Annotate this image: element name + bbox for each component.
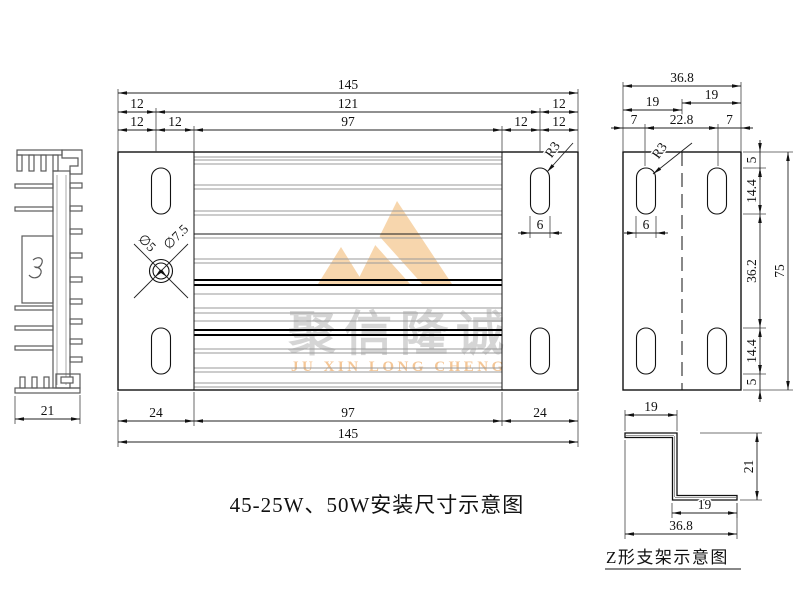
arrowhead (502, 419, 511, 423)
arrowhead (625, 532, 634, 536)
dim-h-12: 12 (502, 114, 540, 132)
side-slot-top-right (708, 168, 727, 214)
dimension-label: 12 (552, 114, 566, 129)
arrowhead (755, 433, 759, 442)
dimension-label: 21 (41, 403, 55, 418)
dim-h-6: 6 (624, 217, 668, 235)
dim-h-145: 145 (118, 426, 578, 444)
arrowhead (185, 419, 194, 423)
z-bracket-view (625, 433, 737, 500)
arrowhead (732, 101, 741, 105)
arrowhead (758, 205, 762, 214)
hole-outer-dia-label: ∅7.5 (160, 221, 191, 252)
arrowhead (623, 84, 632, 88)
hole-inner-dia-label: ∅5 (135, 231, 159, 255)
main-caption: 45-25W、50W安装尺寸示意图 (230, 493, 525, 517)
dimension-label: 21 (741, 460, 756, 474)
technical-drawing: 聚信隆诚 JU XIN LONG CHENG (0, 0, 800, 600)
channel-box (22, 236, 53, 303)
dim-h-24: 24 (502, 405, 578, 423)
dim-h-12: 12 (156, 114, 194, 132)
slot-top-right (531, 168, 550, 214)
arrowhead (682, 101, 691, 105)
arrowhead (194, 419, 203, 423)
dimension-label: 14.4 (744, 179, 759, 203)
dimension-label: 12 (552, 96, 566, 111)
arrowhead (118, 419, 127, 423)
arrowhead (758, 365, 762, 374)
dimension-label: 36.2 (744, 259, 759, 283)
dim-h-145: 145 (118, 77, 578, 95)
arrowhead (502, 128, 511, 132)
arrowhead (656, 231, 665, 235)
dim-h-21: 21 (15, 403, 80, 421)
arrowhead (627, 231, 636, 235)
arrowhead (71, 417, 80, 421)
arrowhead (758, 168, 762, 177)
dim-h-36.8: 36.8 (625, 518, 737, 536)
dim-h-22.8: 22.8 (645, 112, 718, 130)
arrowhead (758, 319, 762, 328)
arrowhead (569, 440, 578, 444)
arrowhead (758, 390, 762, 399)
arrowhead (569, 419, 578, 423)
leader-label: R3 (542, 138, 563, 160)
dimension-label: 36.8 (669, 518, 693, 533)
dimension-label: 145 (338, 426, 359, 441)
dim-h-12: 12 (118, 96, 156, 114)
leader-R3: R3 (542, 138, 573, 173)
dim-v-36.2: 36.2 (744, 214, 762, 328)
dim-h-19: 19 (625, 399, 677, 417)
dim-h-97: 97 (194, 405, 502, 423)
z-caption-text: Z形支架示意图 (606, 548, 729, 567)
arrowhead (156, 110, 165, 114)
arrowhead (118, 110, 127, 114)
arrowhead (755, 491, 759, 500)
arrowhead (540, 128, 549, 132)
arrowhead (550, 231, 559, 235)
dimension-label: 12 (130, 96, 144, 111)
dim-h-36.8: 36.8 (623, 70, 741, 88)
dim-h-12: 12 (540, 114, 578, 132)
dimension-label: 5 (744, 378, 759, 385)
dimension-label: 36.8 (670, 70, 694, 85)
dim-h-6: 6 (518, 217, 562, 235)
dimension-label: 24 (149, 405, 163, 420)
dim-h-97: 97 (194, 114, 502, 132)
arrowhead (786, 381, 790, 390)
dimension-label: 19 (698, 497, 712, 512)
dimension-label: 7 (631, 112, 638, 127)
dimension-label: 5 (744, 156, 759, 163)
z-bracket-outline (625, 433, 737, 500)
arrowhead (668, 413, 677, 417)
arrowhead (118, 91, 127, 95)
dimension-label: 7 (726, 112, 733, 127)
dim-h-19: 19 (623, 94, 682, 112)
dimension-label: 12 (130, 114, 144, 129)
watermark-en: JU XIN LONG CHENG (291, 359, 507, 375)
heatsink-profile-view (15, 150, 82, 393)
dim-h-19: 19 (682, 87, 741, 105)
dim-h-121: 121 (156, 96, 540, 114)
arrowhead (118, 440, 127, 444)
dim-v-5: 5 (744, 362, 762, 402)
arrowhead (185, 128, 194, 132)
top-clip-hook (62, 150, 82, 174)
arrowhead (741, 126, 750, 130)
arrowhead (156, 128, 165, 132)
arrowhead (531, 110, 540, 114)
dimension-label: 75 (772, 264, 787, 278)
arrowhead (569, 128, 578, 132)
drawing-canvas: { "captions": { "main": "45-25W、50W安装尺寸示… (0, 0, 800, 600)
dim-h-12: 12 (540, 96, 578, 114)
counterbore-hole: ∅5 ∅7.5 (134, 221, 191, 298)
spring-clip (29, 258, 42, 278)
arrowhead (758, 143, 762, 152)
dimension-label: 22.8 (670, 112, 694, 127)
arrowhead (15, 417, 24, 421)
dimension-label: 145 (338, 77, 359, 92)
side-slot-top-left (637, 168, 656, 214)
leader-R3: R3 (649, 139, 692, 175)
dim-v-14.4: 14.4 (744, 168, 762, 214)
dimension-label: 12 (168, 114, 182, 129)
arrowhead (758, 214, 762, 223)
dimension-label: 19 (644, 399, 658, 414)
dim-h-12: 12 (118, 114, 156, 132)
arrowhead (147, 128, 156, 132)
leader-label: R3 (649, 139, 670, 161)
slot-bottom-right (531, 328, 550, 374)
arrowhead (614, 126, 623, 130)
dim-v-21: 21 (741, 433, 759, 500)
arrowhead (672, 511, 681, 515)
arrowhead (786, 152, 790, 161)
dimension-label: 19 (705, 87, 719, 102)
dim-h-7: 7 (706, 112, 753, 130)
dimension-label: 6 (537, 217, 544, 232)
arrowhead (493, 128, 502, 132)
arrowhead (194, 128, 203, 132)
z-bracket-caption: Z形支架示意图 (605, 548, 741, 569)
arrowhead (521, 231, 530, 235)
arrowhead (569, 110, 578, 114)
dim-v-75: 75 (772, 152, 790, 390)
slot-top-left (152, 168, 171, 214)
side-view (623, 152, 741, 390)
arrowhead (493, 419, 502, 423)
dimension-label: 14.4 (744, 339, 759, 363)
dimension-label: 121 (338, 96, 358, 111)
arrowhead (728, 532, 737, 536)
side-slot-bottom-right (708, 328, 727, 374)
arrowhead (147, 110, 156, 114)
arrowhead (732, 84, 741, 88)
arrowhead (758, 328, 762, 337)
arrowhead (728, 511, 737, 515)
arrowhead (118, 128, 127, 132)
dimension-label: 6 (643, 217, 650, 232)
arrowhead (625, 413, 634, 417)
dimension-label: 24 (533, 405, 547, 420)
dimension-label: 12 (514, 114, 528, 129)
dimension-label: 97 (341, 114, 355, 129)
logo-triangle-small (318, 247, 364, 284)
arrowhead (540, 110, 549, 114)
dimension-label: 97 (341, 405, 355, 420)
dimension-label: 19 (646, 94, 660, 109)
slot-bottom-left (152, 328, 171, 374)
arrowhead (709, 126, 718, 130)
arrowhead (569, 91, 578, 95)
arrowhead (645, 126, 654, 130)
arrowhead (531, 128, 540, 132)
dim-h-24: 24 (118, 405, 194, 423)
side-slot-bottom-left (637, 328, 656, 374)
